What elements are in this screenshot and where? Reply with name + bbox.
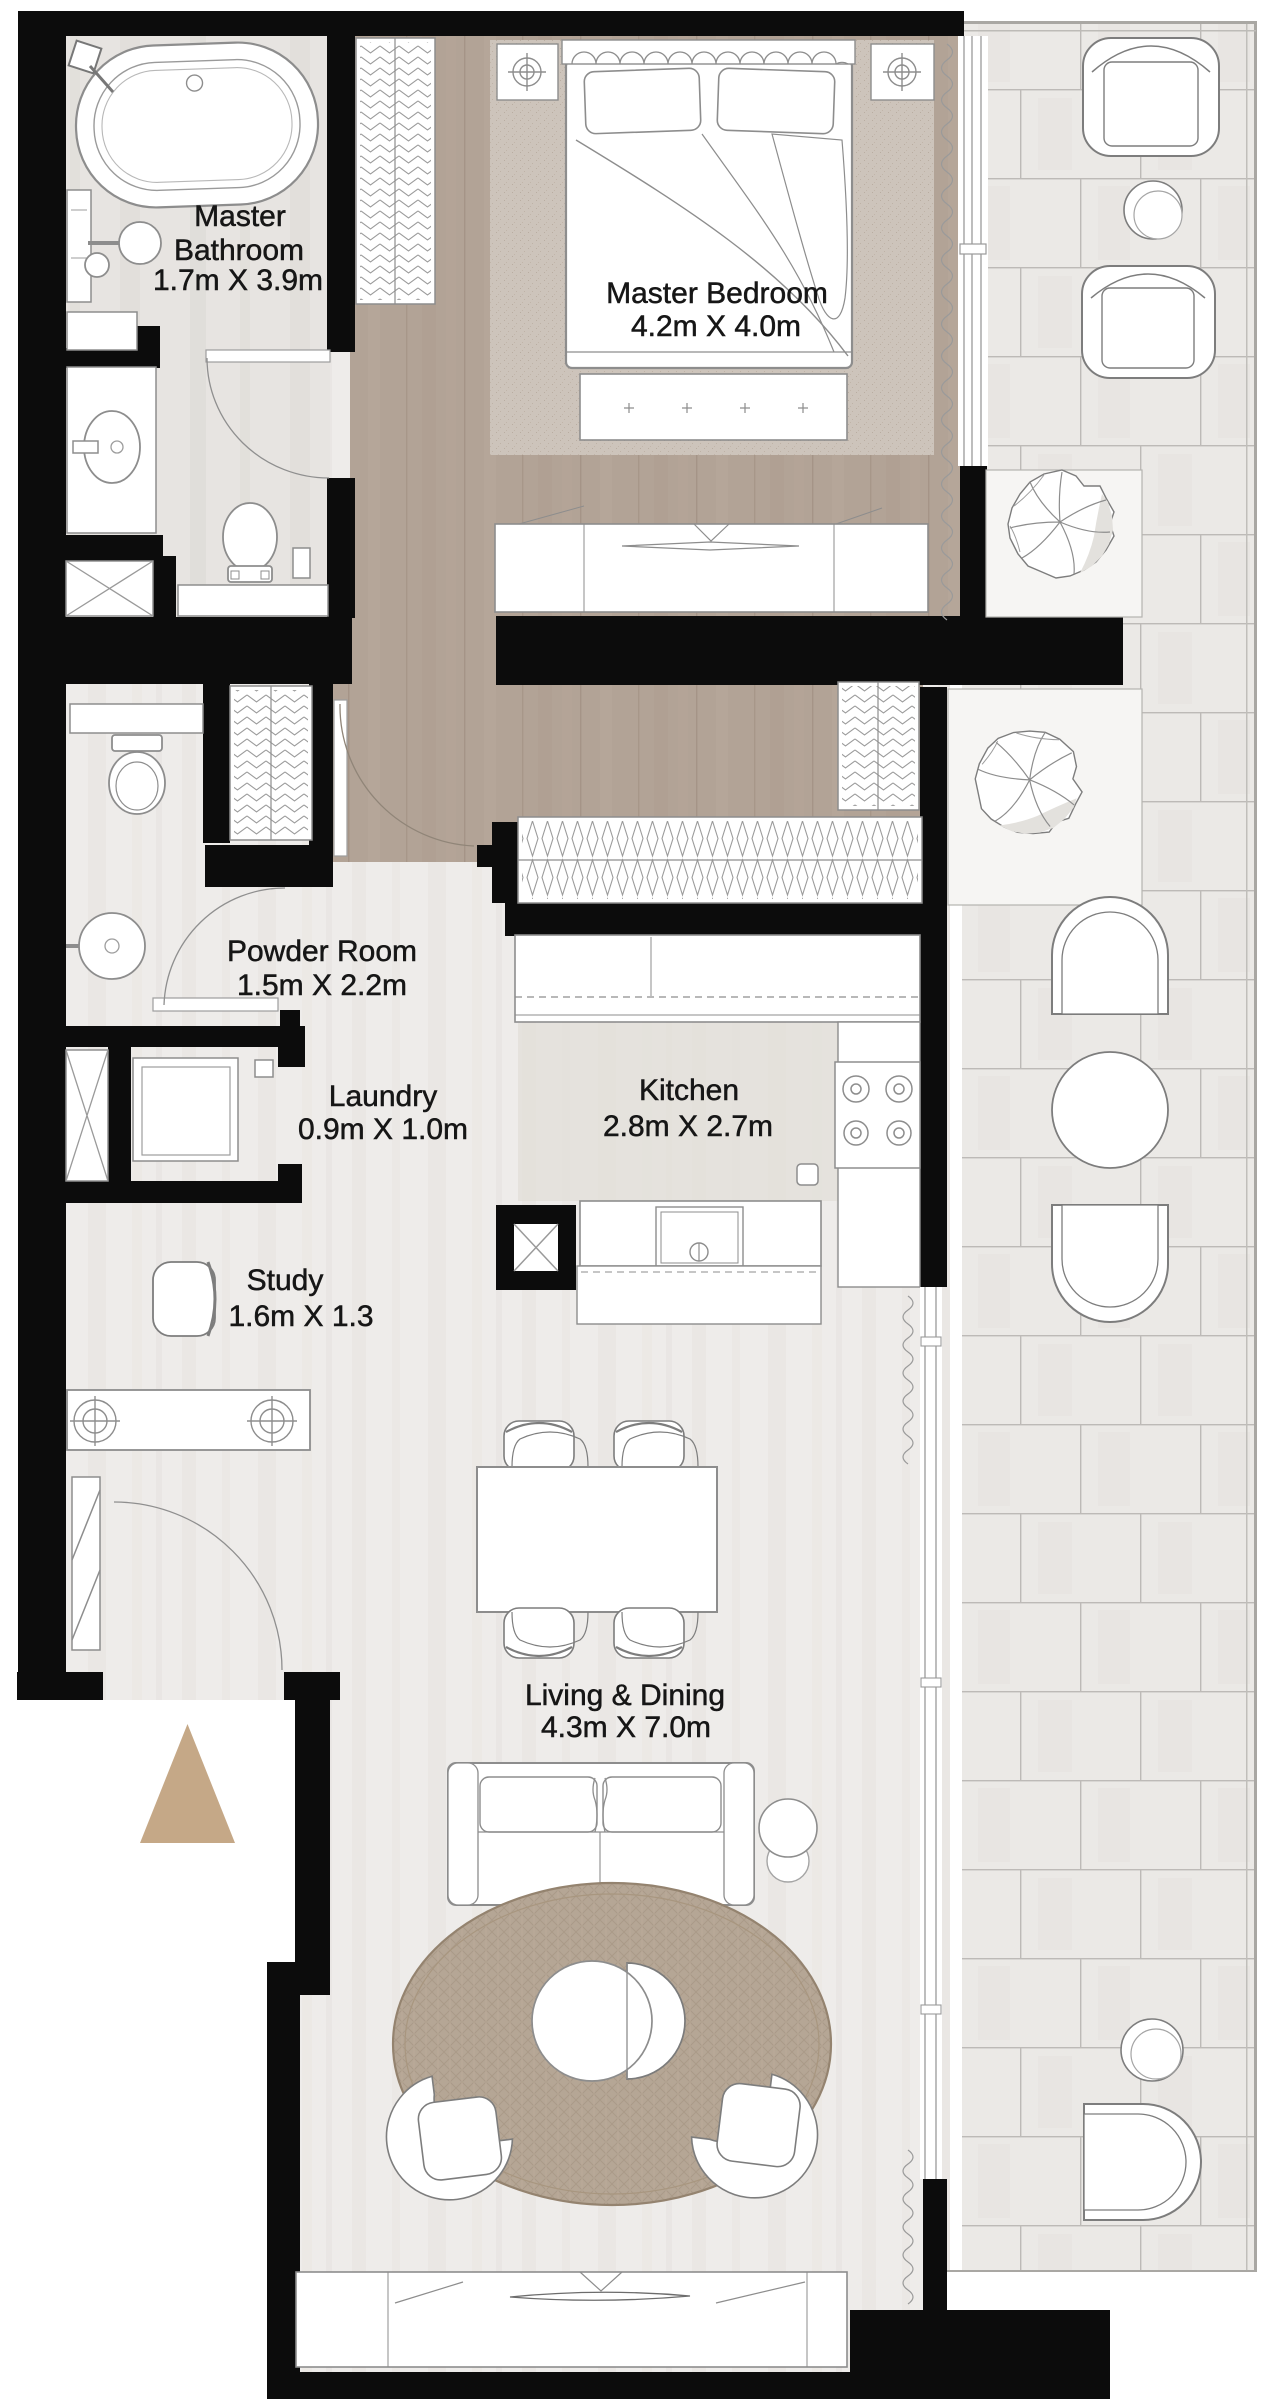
svg-text:Study: Study <box>247 1264 324 1297</box>
svg-text:Laundry: Laundry <box>329 1080 437 1113</box>
svg-text:Powder Room: Powder Room <box>227 935 417 968</box>
svg-text:Master: Master <box>194 200 286 233</box>
svg-text:4.3m X 7.0m: 4.3m X 7.0m <box>541 1711 711 1744</box>
svg-text:Kitchen: Kitchen <box>639 1074 739 1107</box>
svg-text:0.9m X 1.0m: 0.9m X 1.0m <box>298 1113 468 1146</box>
svg-text:Living & Dining: Living & Dining <box>525 1679 725 1712</box>
svg-text:4.2m X 4.0m: 4.2m X 4.0m <box>631 310 801 343</box>
svg-text:Bathroom: Bathroom <box>174 234 304 267</box>
svg-text:1.5m X 2.2m: 1.5m X 2.2m <box>237 969 407 1002</box>
svg-text:2.8m X 2.7m: 2.8m X 2.7m <box>603 1110 773 1143</box>
svg-text:1.6m X 1.3: 1.6m X 1.3 <box>228 1300 373 1333</box>
svg-text:1.7m X 3.9m: 1.7m X 3.9m <box>153 264 323 297</box>
svg-text:Master Bedroom: Master Bedroom <box>606 277 828 310</box>
